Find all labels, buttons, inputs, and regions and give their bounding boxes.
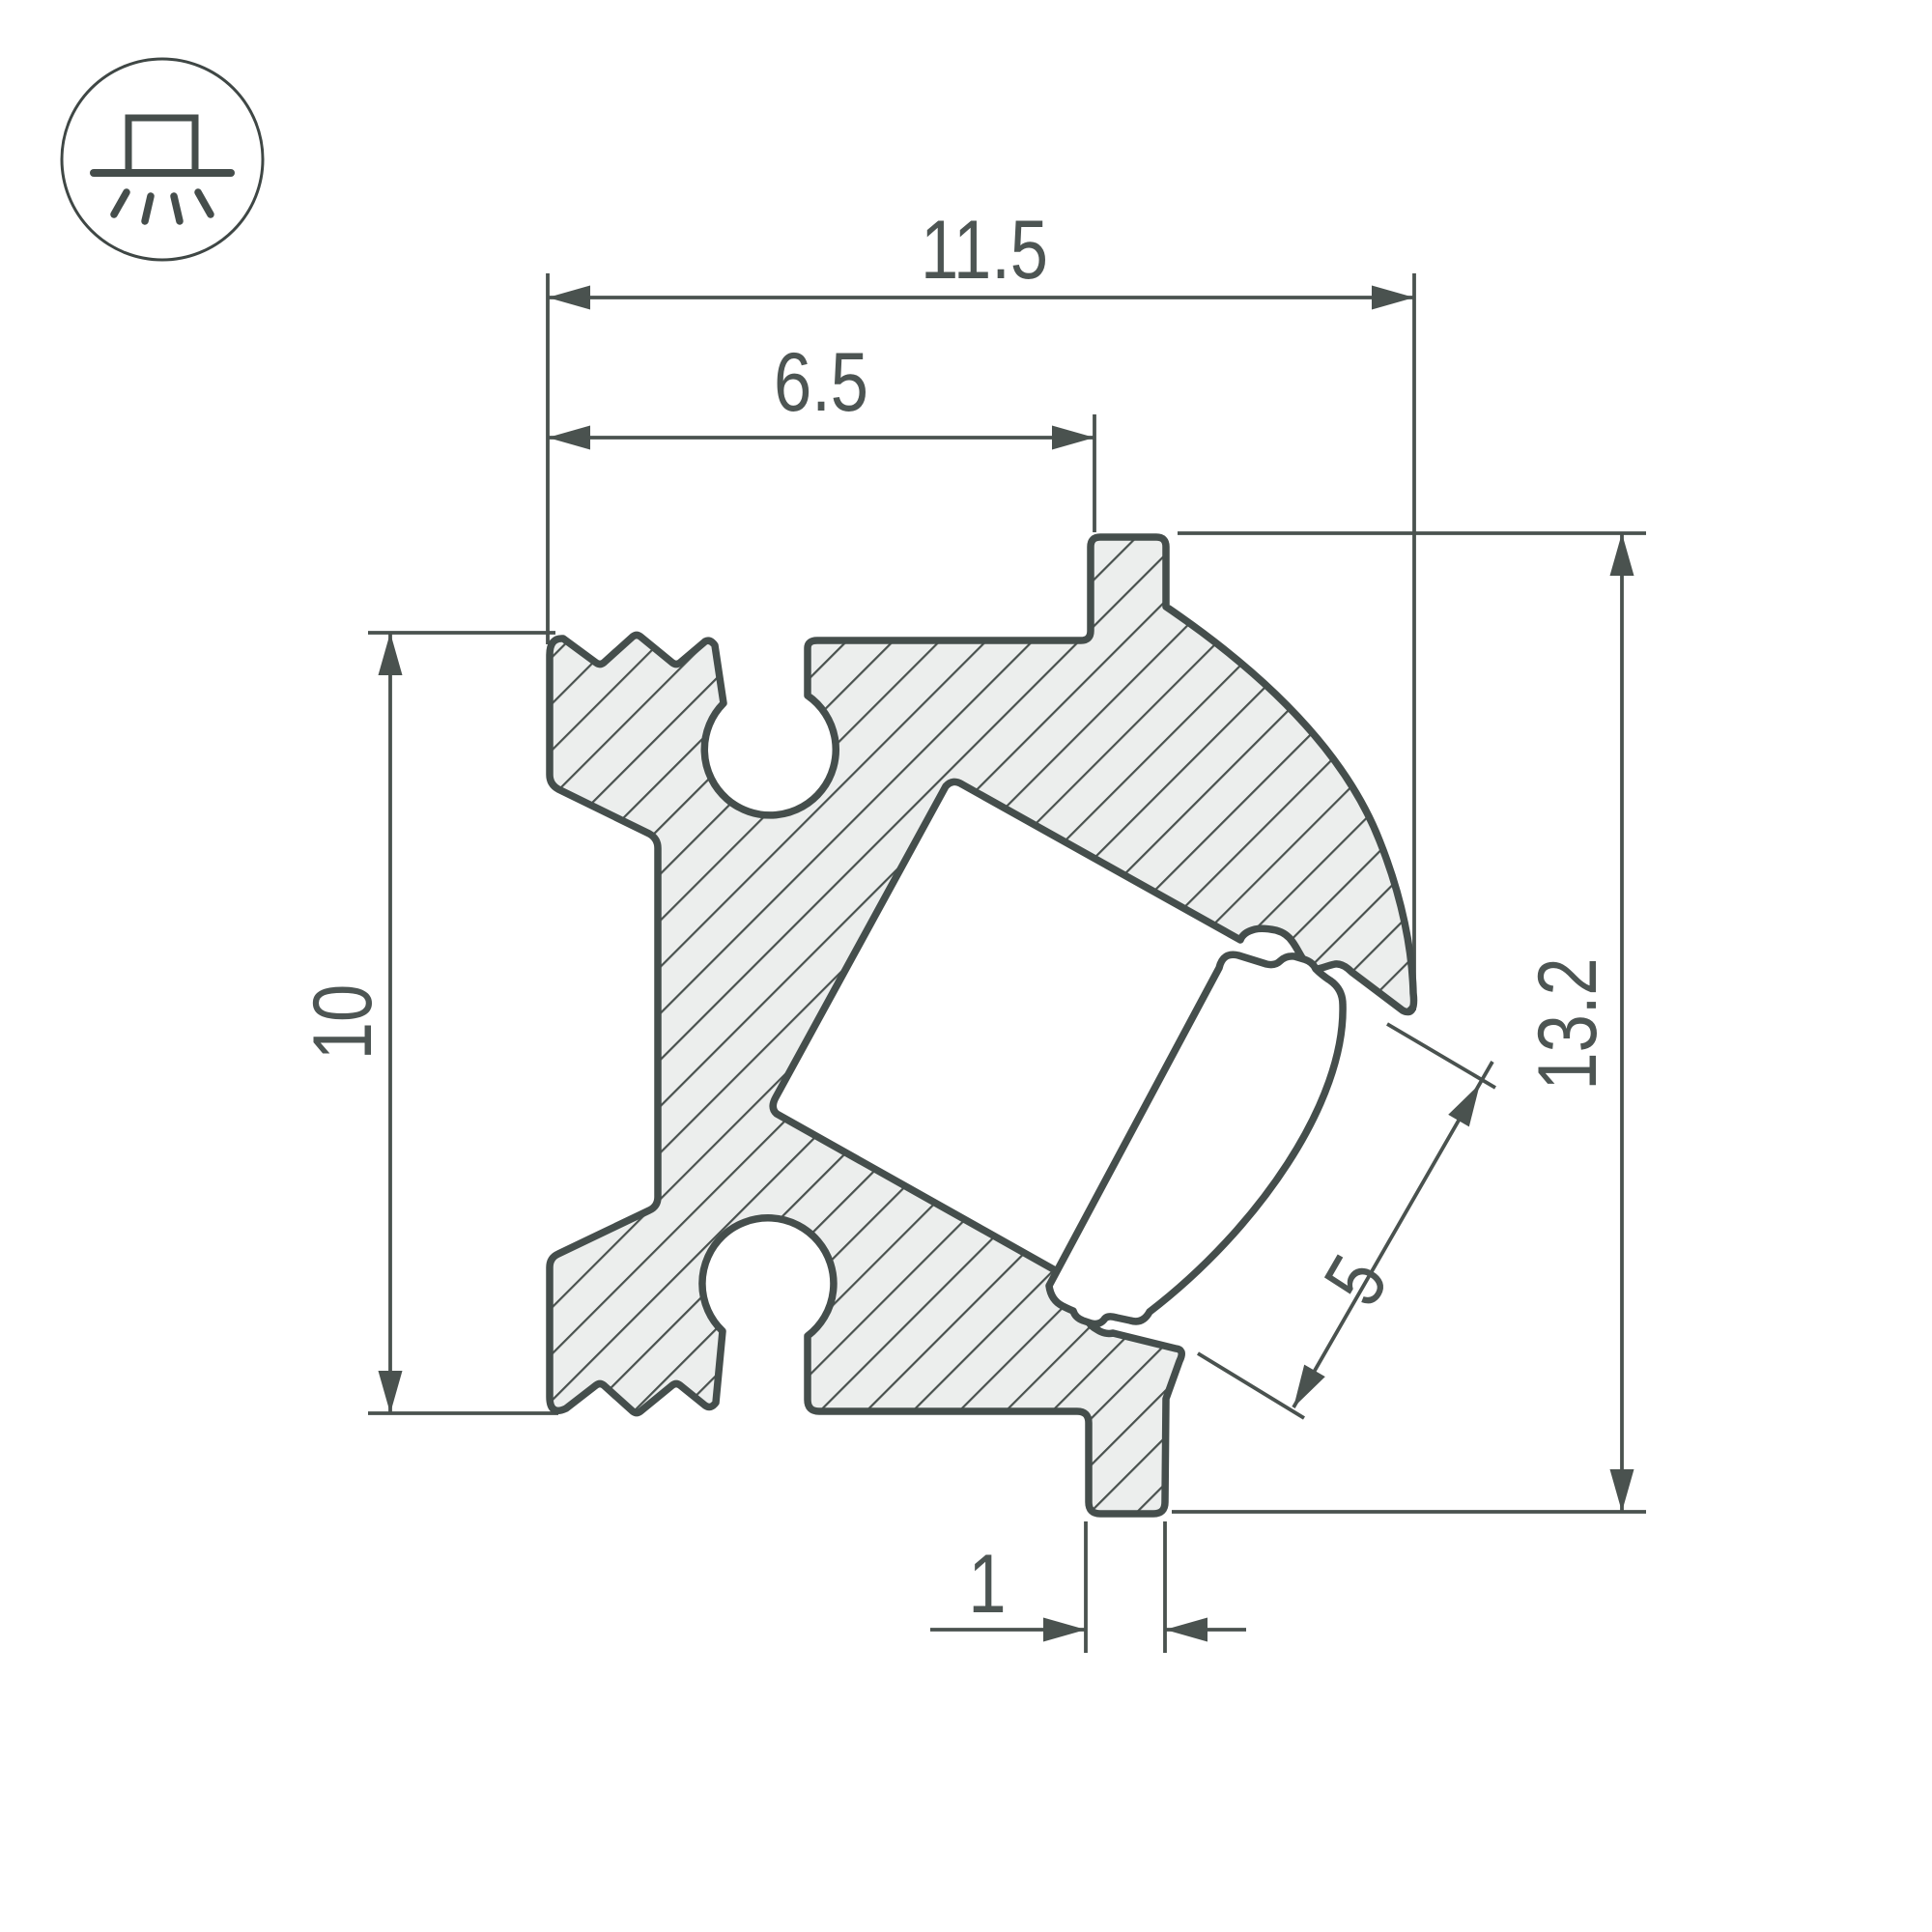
svg-text:10: 10 (296, 984, 388, 1060)
svg-text:1: 1 (968, 1537, 1006, 1630)
svg-text:13.2: 13.2 (1520, 957, 1613, 1090)
svg-text:6.5: 6.5 (774, 335, 868, 428)
svg-text:11.5: 11.5 (921, 203, 1048, 296)
